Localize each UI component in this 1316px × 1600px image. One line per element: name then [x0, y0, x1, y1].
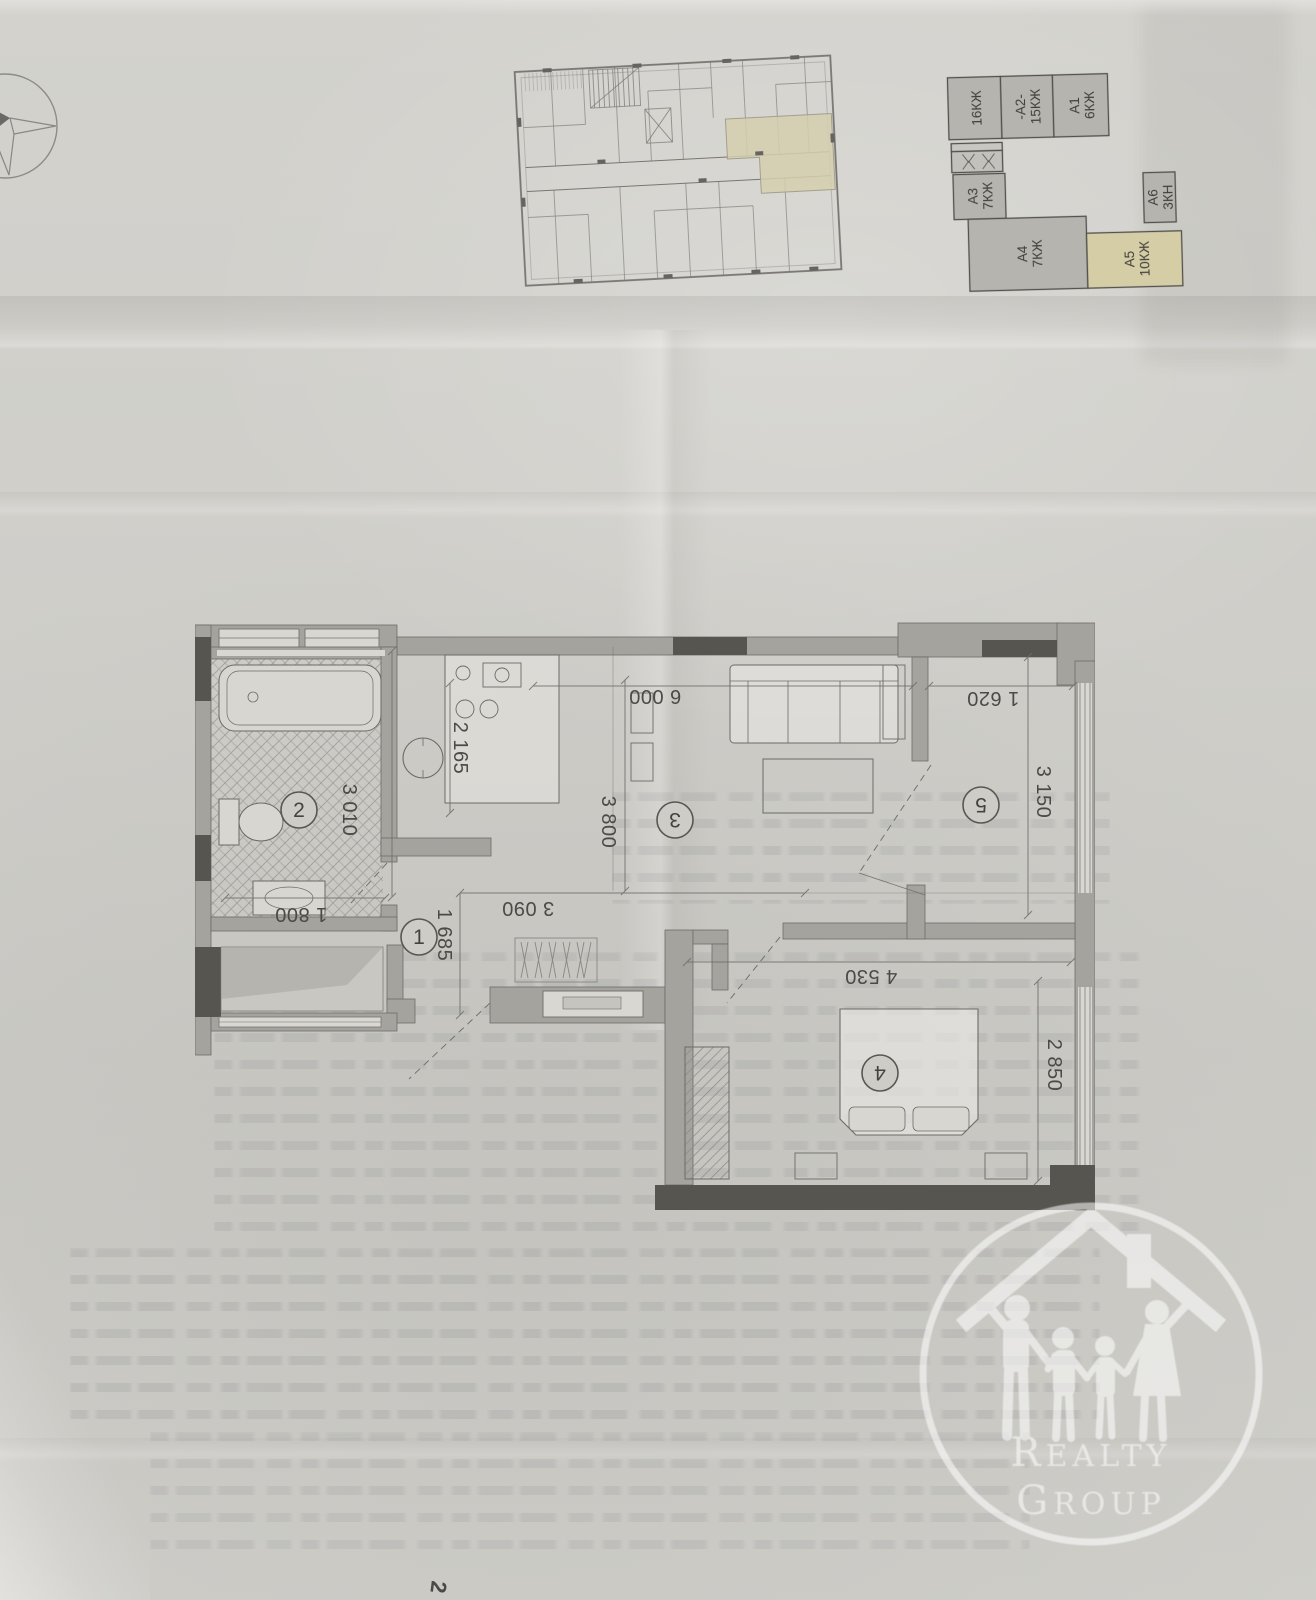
unit-label: 15КЖ	[1028, 88, 1044, 124]
dim-label-1620: 1 620	[967, 687, 1020, 709]
paper-crease	[0, 492, 1316, 518]
door-swing-bedroom	[727, 937, 780, 1003]
hall-closet	[515, 938, 597, 982]
watermark-line1: REALTY	[1011, 1430, 1172, 1476]
elevator-block	[951, 150, 1003, 172]
dim-label-3800: 3 800	[597, 796, 619, 849]
unit-label: А3	[965, 188, 980, 205]
bathtub	[219, 665, 381, 731]
dim-label-4530: 4 530	[845, 965, 898, 987]
dim-label-6000: 6 000	[629, 685, 682, 707]
window-slit	[217, 650, 385, 656]
lower-balcony	[221, 947, 383, 1011]
unit-label: А6	[1145, 189, 1160, 206]
nightstand	[985, 1153, 1027, 1179]
unit-label: А5	[1122, 251, 1137, 268]
wardrobe	[685, 1047, 729, 1179]
bleed-through-text	[150, 1432, 1030, 1560]
paper-crease	[0, 296, 1316, 350]
pillow	[849, 1107, 905, 1131]
dim-label-3010: 3 010	[338, 784, 360, 837]
scanned-floor-plan-page: { "page": { "footer_mark": "2" }, "key_p…	[0, 0, 1316, 1600]
watermark-line2: GROUP	[1016, 1478, 1166, 1524]
kitchen	[403, 655, 559, 803]
sofa	[730, 665, 898, 743]
apartment-floor-plan: 6 000 2 165 3 010 1 800 1 685 3 090 3 80…	[195, 585, 1095, 1235]
unit-label: 6КЖ	[1082, 90, 1098, 119]
unit-label: 10КЖ	[1137, 240, 1153, 276]
room-number-4: 4	[874, 1061, 886, 1084]
realty-group-watermark: REALTY GROUP	[905, 1188, 1277, 1560]
unit-label: А1	[1067, 97, 1082, 114]
unit-label: 7КЖ	[1030, 239, 1046, 268]
paper-edge-highlight	[0, 0, 1316, 16]
shelf	[631, 743, 653, 781]
dim-label-2165: 2 165	[449, 722, 471, 775]
highlighted-apartment-area	[725, 114, 835, 195]
door-swing-room5	[859, 765, 931, 873]
unit-label: 7КЖ	[980, 181, 996, 210]
toilet	[239, 803, 283, 841]
unit-label: -А2-	[1013, 94, 1029, 120]
unit-label: А4	[1015, 245, 1030, 262]
dim-label-3150: 3 150	[1032, 766, 1054, 819]
dim-label-3090: 3 090	[502, 897, 555, 919]
nightstand	[795, 1153, 837, 1179]
pillow	[913, 1107, 969, 1131]
room-number-2: 2	[293, 799, 305, 822]
building-overview-plan	[492, 41, 849, 299]
north-arrow-icon	[0, 64, 66, 190]
room-number-1: 1	[413, 926, 425, 949]
coffee-table	[763, 759, 873, 813]
unit-label: 3КН	[1160, 184, 1176, 210]
room-number-3: 3	[669, 808, 681, 831]
balcony-hatch	[525, 71, 582, 92]
bedroom-furniture	[685, 1009, 1027, 1179]
family-silhouette-icon	[1003, 1295, 1181, 1397]
door-swing-entrance	[409, 1003, 490, 1079]
toilet-tank	[219, 799, 239, 845]
room-number-5: 5	[975, 793, 987, 816]
page-footer-mark: 2	[424, 1579, 451, 1594]
dim-label-2850: 2 850	[1043, 1039, 1065, 1092]
page-corner-fold	[0, 1220, 150, 1600]
dim-label-1800: 1 800	[275, 903, 328, 925]
unit-key-plan: 16КЖ -А2- 15КЖ А1 6КЖ А3 7КЖ А6 3КН А4 7…	[922, 52, 1190, 301]
unit-label: 16КЖ	[969, 90, 985, 126]
